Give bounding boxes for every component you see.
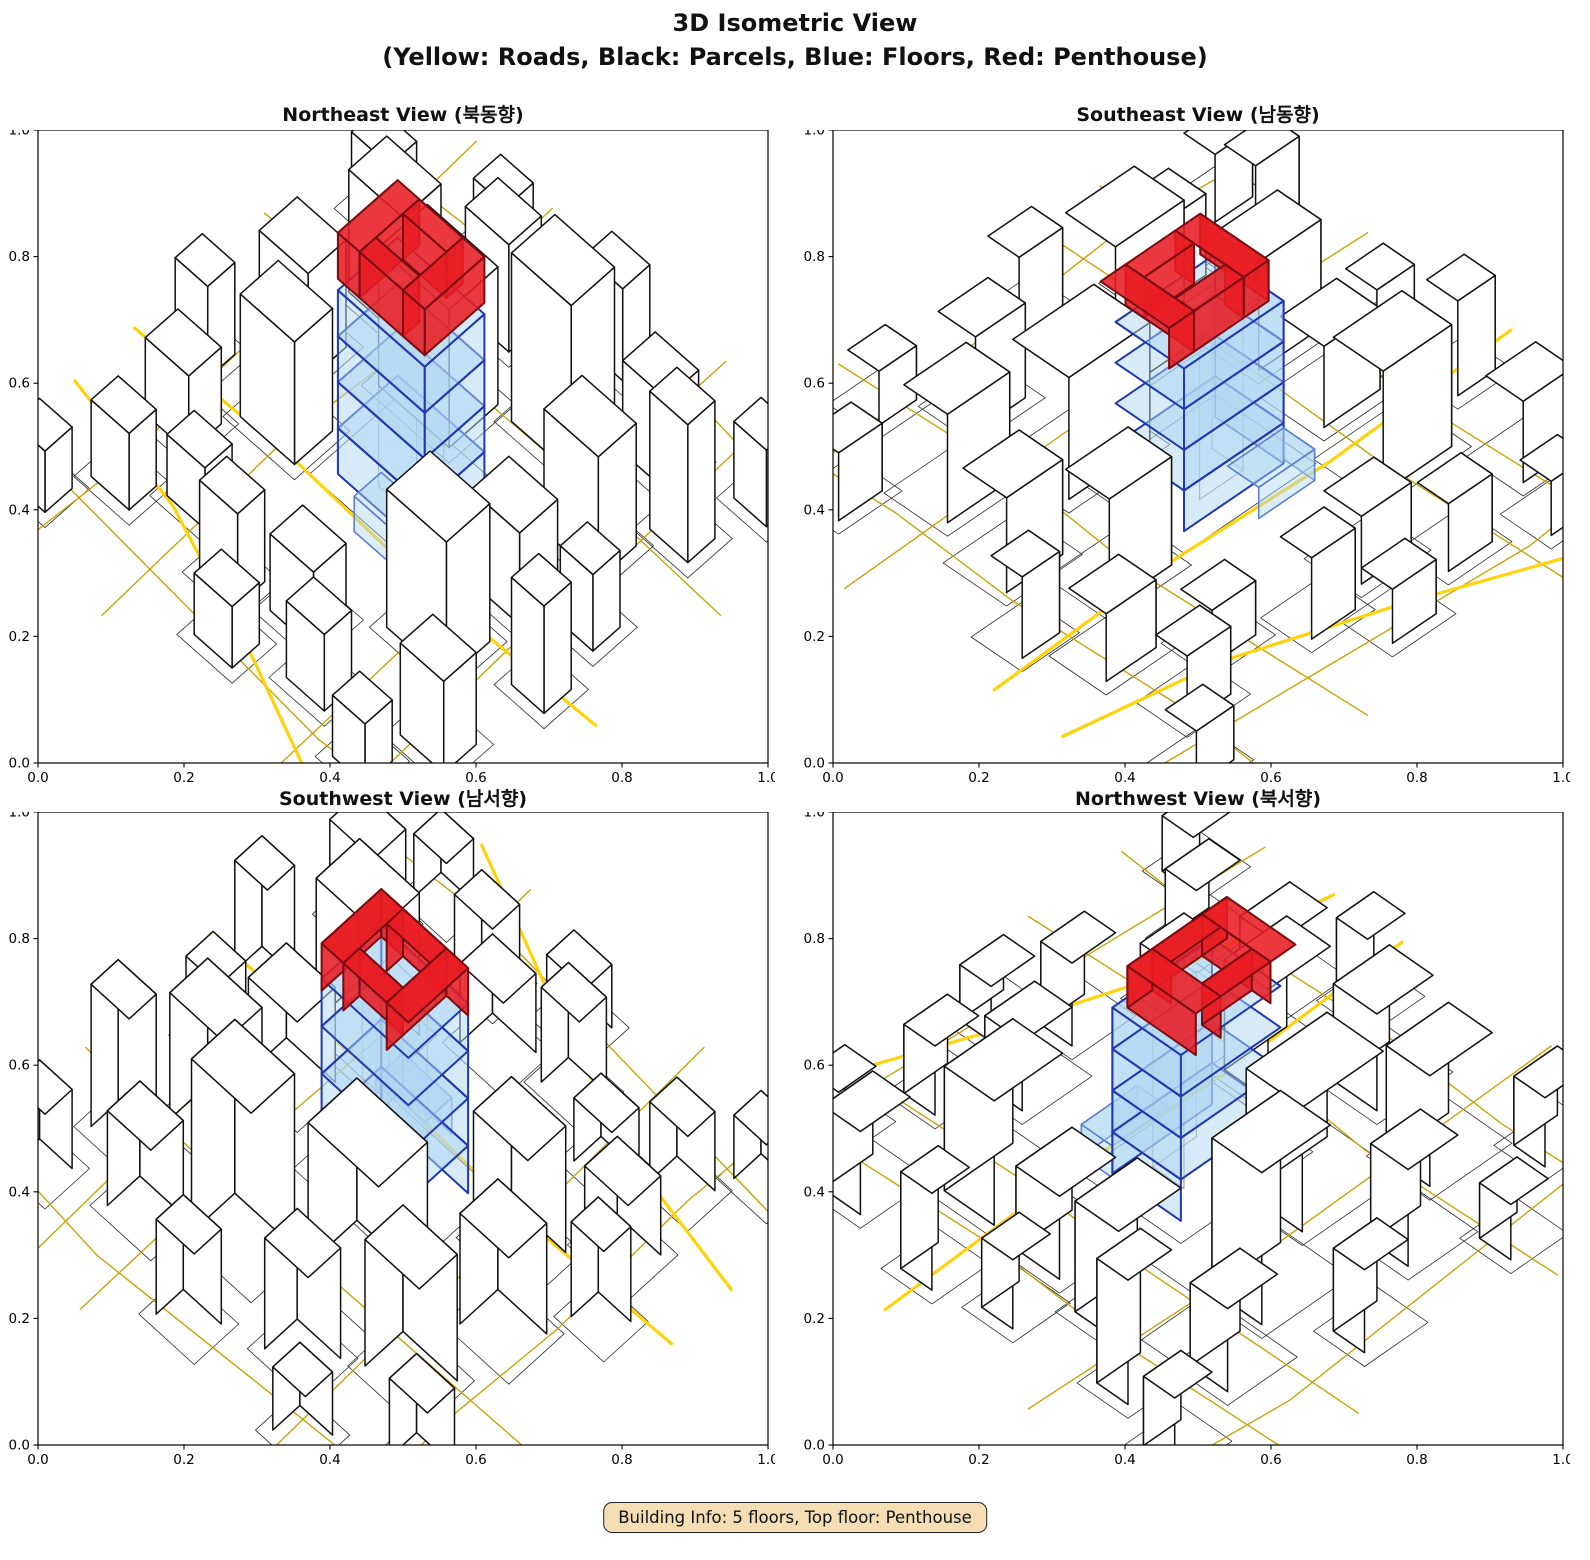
subplot-title-northeast: Northeast View (북동향) [38, 100, 768, 127]
scene-layer [0, 812, 775, 1477]
scene-layer [0, 130, 775, 795]
y-tick-label: 0.2 [804, 629, 825, 645]
y-tick-label: 0.6 [9, 376, 30, 392]
y-tick-label: 0.8 [804, 931, 825, 947]
x-tick-label: 0.4 [319, 770, 340, 786]
x-tick-label: 0.8 [1406, 770, 1427, 786]
x-tick-label: 0.6 [465, 1452, 486, 1468]
y-tick-label: 0.2 [804, 1311, 825, 1327]
y-tick-label: 0.4 [9, 502, 30, 518]
scene-northeast-svg: 0.00.00.20.20.40.40.60.60.80.81.01.0 [0, 130, 775, 795]
y-tick-label: 0.6 [804, 1058, 825, 1074]
x-tick-label: 0.8 [1406, 1452, 1427, 1468]
plot-southeast: 0.00.00.20.20.40.40.60.60.80.81.01.0 [795, 130, 1570, 795]
y-tick-label: 0.8 [9, 249, 30, 265]
plot-southwest: 0.00.00.20.20.40.40.60.60.80.81.01.0 [0, 812, 775, 1477]
x-tick-label: 0.8 [611, 1452, 632, 1468]
plot-northwest: 0.00.00.20.20.40.40.60.60.80.81.01.0 [795, 812, 1570, 1477]
x-tick-label: 0.6 [1260, 1452, 1281, 1468]
x-tick-label: 0.0 [822, 770, 843, 786]
y-tick-label: 0.0 [9, 756, 30, 772]
y-tick-label: 1.0 [9, 130, 30, 139]
x-tick-label: 0.2 [173, 770, 194, 786]
x-tick-label: 0.2 [968, 1452, 989, 1468]
scene-layer [795, 812, 1570, 1477]
y-tick-label: 1.0 [804, 812, 825, 821]
y-tick-label: 0.4 [804, 1184, 825, 1200]
x-tick-label: 0.0 [822, 1452, 843, 1468]
x-tick-label: 1.0 [1552, 1452, 1570, 1468]
buildings-layer [807, 812, 1570, 1467]
x-tick-label: 0.4 [319, 1452, 340, 1468]
x-tick-label: 0.4 [1114, 1452, 1135, 1468]
buildings-layer [12, 812, 775, 1467]
x-tick-label: 0.4 [1114, 770, 1135, 786]
y-tick-label: 0.4 [804, 502, 825, 518]
scene-layer [795, 130, 1570, 795]
scene-northwest-svg: 0.00.00.20.20.40.40.60.60.80.81.01.0 [795, 812, 1570, 1477]
plot-northeast: 0.00.00.20.20.40.40.60.60.80.81.01.0 [0, 130, 775, 795]
figure-title-line1: 3D Isometric View [0, 7, 1590, 41]
y-tick-label: 1.0 [9, 812, 30, 821]
scene-southeast-svg: 0.00.00.20.20.40.40.60.60.80.81.01.0 [795, 130, 1570, 795]
y-tick-label: 0.6 [9, 1058, 30, 1074]
y-tick-label: 0.8 [804, 249, 825, 265]
x-tick-label: 1.0 [757, 1452, 775, 1468]
y-tick-label: 0.4 [9, 1184, 30, 1200]
y-tick-label: 0.0 [804, 1438, 825, 1454]
y-tick-label: 0.2 [9, 1311, 30, 1327]
x-tick-label: 0.0 [27, 770, 48, 786]
x-tick-label: 0.2 [968, 770, 989, 786]
y-tick-label: 0.6 [804, 376, 825, 392]
buildings-layer [807, 130, 1570, 785]
figure-title-line2: (Yellow: Roads, Black: Parcels, Blue: Fl… [0, 41, 1590, 75]
x-tick-label: 0.6 [1260, 770, 1281, 786]
x-tick-label: 0.0 [27, 1452, 48, 1468]
y-tick-label: 1.0 [804, 130, 825, 139]
scene-southwest-svg: 0.00.00.20.20.40.40.60.60.80.81.01.0 [0, 812, 775, 1477]
figure: 3D Isometric View (Yellow: Roads, Black:… [0, 0, 1590, 1560]
x-tick-label: 1.0 [757, 770, 775, 786]
x-tick-label: 0.8 [611, 770, 632, 786]
subplot-title-southeast: Southeast View (남동향) [833, 100, 1563, 127]
figure-title: 3D Isometric View (Yellow: Roads, Black:… [0, 7, 1590, 74]
y-tick-label: 0.0 [804, 756, 825, 772]
x-tick-label: 0.2 [173, 1452, 194, 1468]
building-info-caption: Building Info: 5 floors, Top floor: Pent… [603, 1502, 987, 1533]
y-tick-label: 0.8 [9, 931, 30, 947]
buildings-layer [12, 130, 775, 785]
y-tick-label: 0.2 [9, 629, 30, 645]
x-tick-label: 1.0 [1552, 770, 1570, 786]
x-tick-label: 0.6 [465, 770, 486, 786]
y-tick-label: 0.0 [9, 1438, 30, 1454]
